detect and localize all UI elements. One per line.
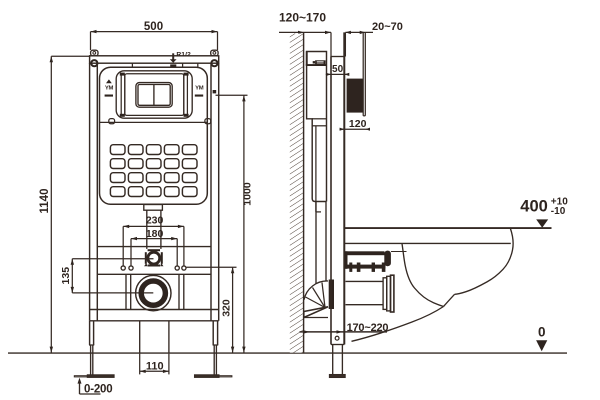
svg-text:YM: YM: [195, 85, 204, 91]
svg-text:320: 320: [220, 299, 232, 317]
svg-text:50: 50: [332, 64, 344, 75]
svg-text:1140: 1140: [39, 189, 51, 214]
svg-text:170~220: 170~220: [347, 322, 389, 334]
svg-text:0: 0: [538, 324, 546, 339]
svg-text:400: 400: [520, 198, 548, 216]
svg-text:R1/2: R1/2: [176, 52, 191, 59]
svg-text:-10: -10: [551, 206, 566, 217]
svg-text:YM: YM: [105, 85, 114, 91]
svg-text:20~70: 20~70: [372, 21, 403, 33]
svg-text:120: 120: [349, 118, 367, 130]
svg-text:0-200: 0-200: [84, 383, 112, 395]
svg-text:120~170: 120~170: [279, 10, 326, 24]
svg-text:135: 135: [60, 267, 72, 285]
svg-text:230: 230: [146, 215, 164, 227]
